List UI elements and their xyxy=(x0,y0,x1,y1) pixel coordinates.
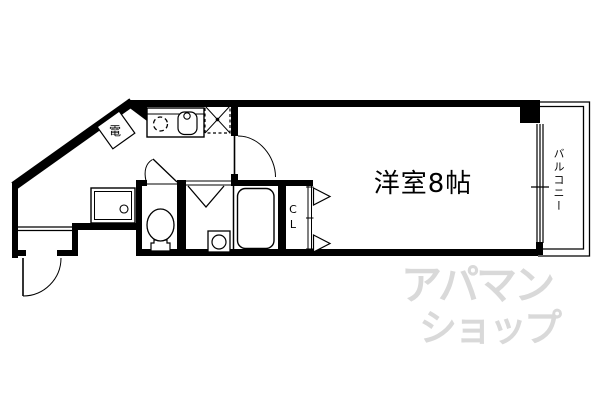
appliance-space-x-marker xyxy=(205,106,230,133)
balcony-label: バルコニー xyxy=(550,148,566,213)
washing-machine-pan xyxy=(91,188,135,223)
floorplan-drawing xyxy=(0,0,600,400)
room-door-swing xyxy=(235,136,276,177)
balcony-window xyxy=(531,124,549,243)
floorplan-canvas: アパマン ショップ xyxy=(0,0,600,400)
entrance-step-line xyxy=(18,227,72,231)
main-room-label: 洋室8帖 xyxy=(364,163,482,200)
closet-label: C L xyxy=(286,202,300,232)
water-heater-label: 電 xyxy=(109,122,121,139)
bathtub xyxy=(238,189,275,249)
washbasin xyxy=(208,231,230,252)
closet-doors xyxy=(306,186,330,252)
kitchen-sink xyxy=(178,112,197,135)
toilet-door-swing xyxy=(145,159,177,182)
washroom-folding-door xyxy=(188,186,224,207)
entrance-door-swing xyxy=(23,258,61,296)
toilet xyxy=(147,209,174,251)
